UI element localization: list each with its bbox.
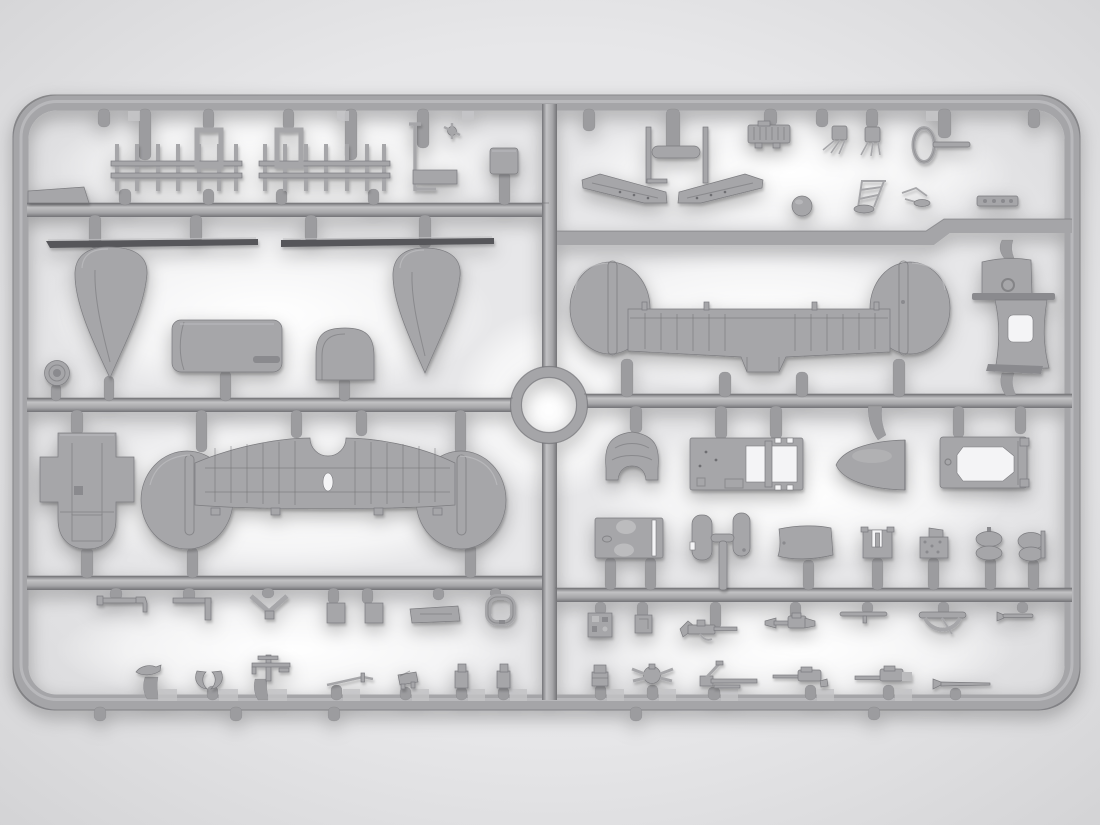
bomb-pair — [1018, 531, 1045, 561]
photo-stage — [0, 0, 1100, 825]
u-bracket — [861, 527, 894, 558]
rail-h2-left — [27, 398, 513, 412]
rail-h3-left — [27, 576, 543, 590]
rail-v-mid — [542, 442, 557, 590]
rail-h1-left — [27, 203, 549, 217]
valve-manifold — [977, 196, 1018, 206]
tail-wheel — [45, 361, 70, 386]
cockpit-floor-frame — [690, 438, 803, 490]
small-box-2 — [365, 603, 383, 623]
small-box — [490, 148, 518, 174]
flat-plate — [413, 170, 457, 184]
ammo-box — [592, 665, 608, 686]
fuel-tank-cylinder — [172, 320, 282, 372]
small-box-1 — [327, 603, 345, 623]
access-plate — [410, 606, 460, 623]
tank-end-plate — [595, 518, 663, 558]
fuselage-deck-panel — [982, 258, 1032, 295]
fuselage-bulkhead-frame — [940, 437, 1029, 488]
junction-box — [635, 615, 652, 633]
control-ball — [792, 196, 812, 216]
rail-v-bottom — [542, 588, 557, 700]
rail-h3-right — [555, 588, 1072, 602]
headrest-dome — [316, 328, 374, 380]
equipment-plate — [588, 613, 612, 637]
sprue-photo — [0, 0, 1100, 825]
rail-v-top — [542, 104, 557, 368]
curved-cowl-panel — [778, 526, 833, 559]
rail-h2-right — [584, 394, 1072, 408]
